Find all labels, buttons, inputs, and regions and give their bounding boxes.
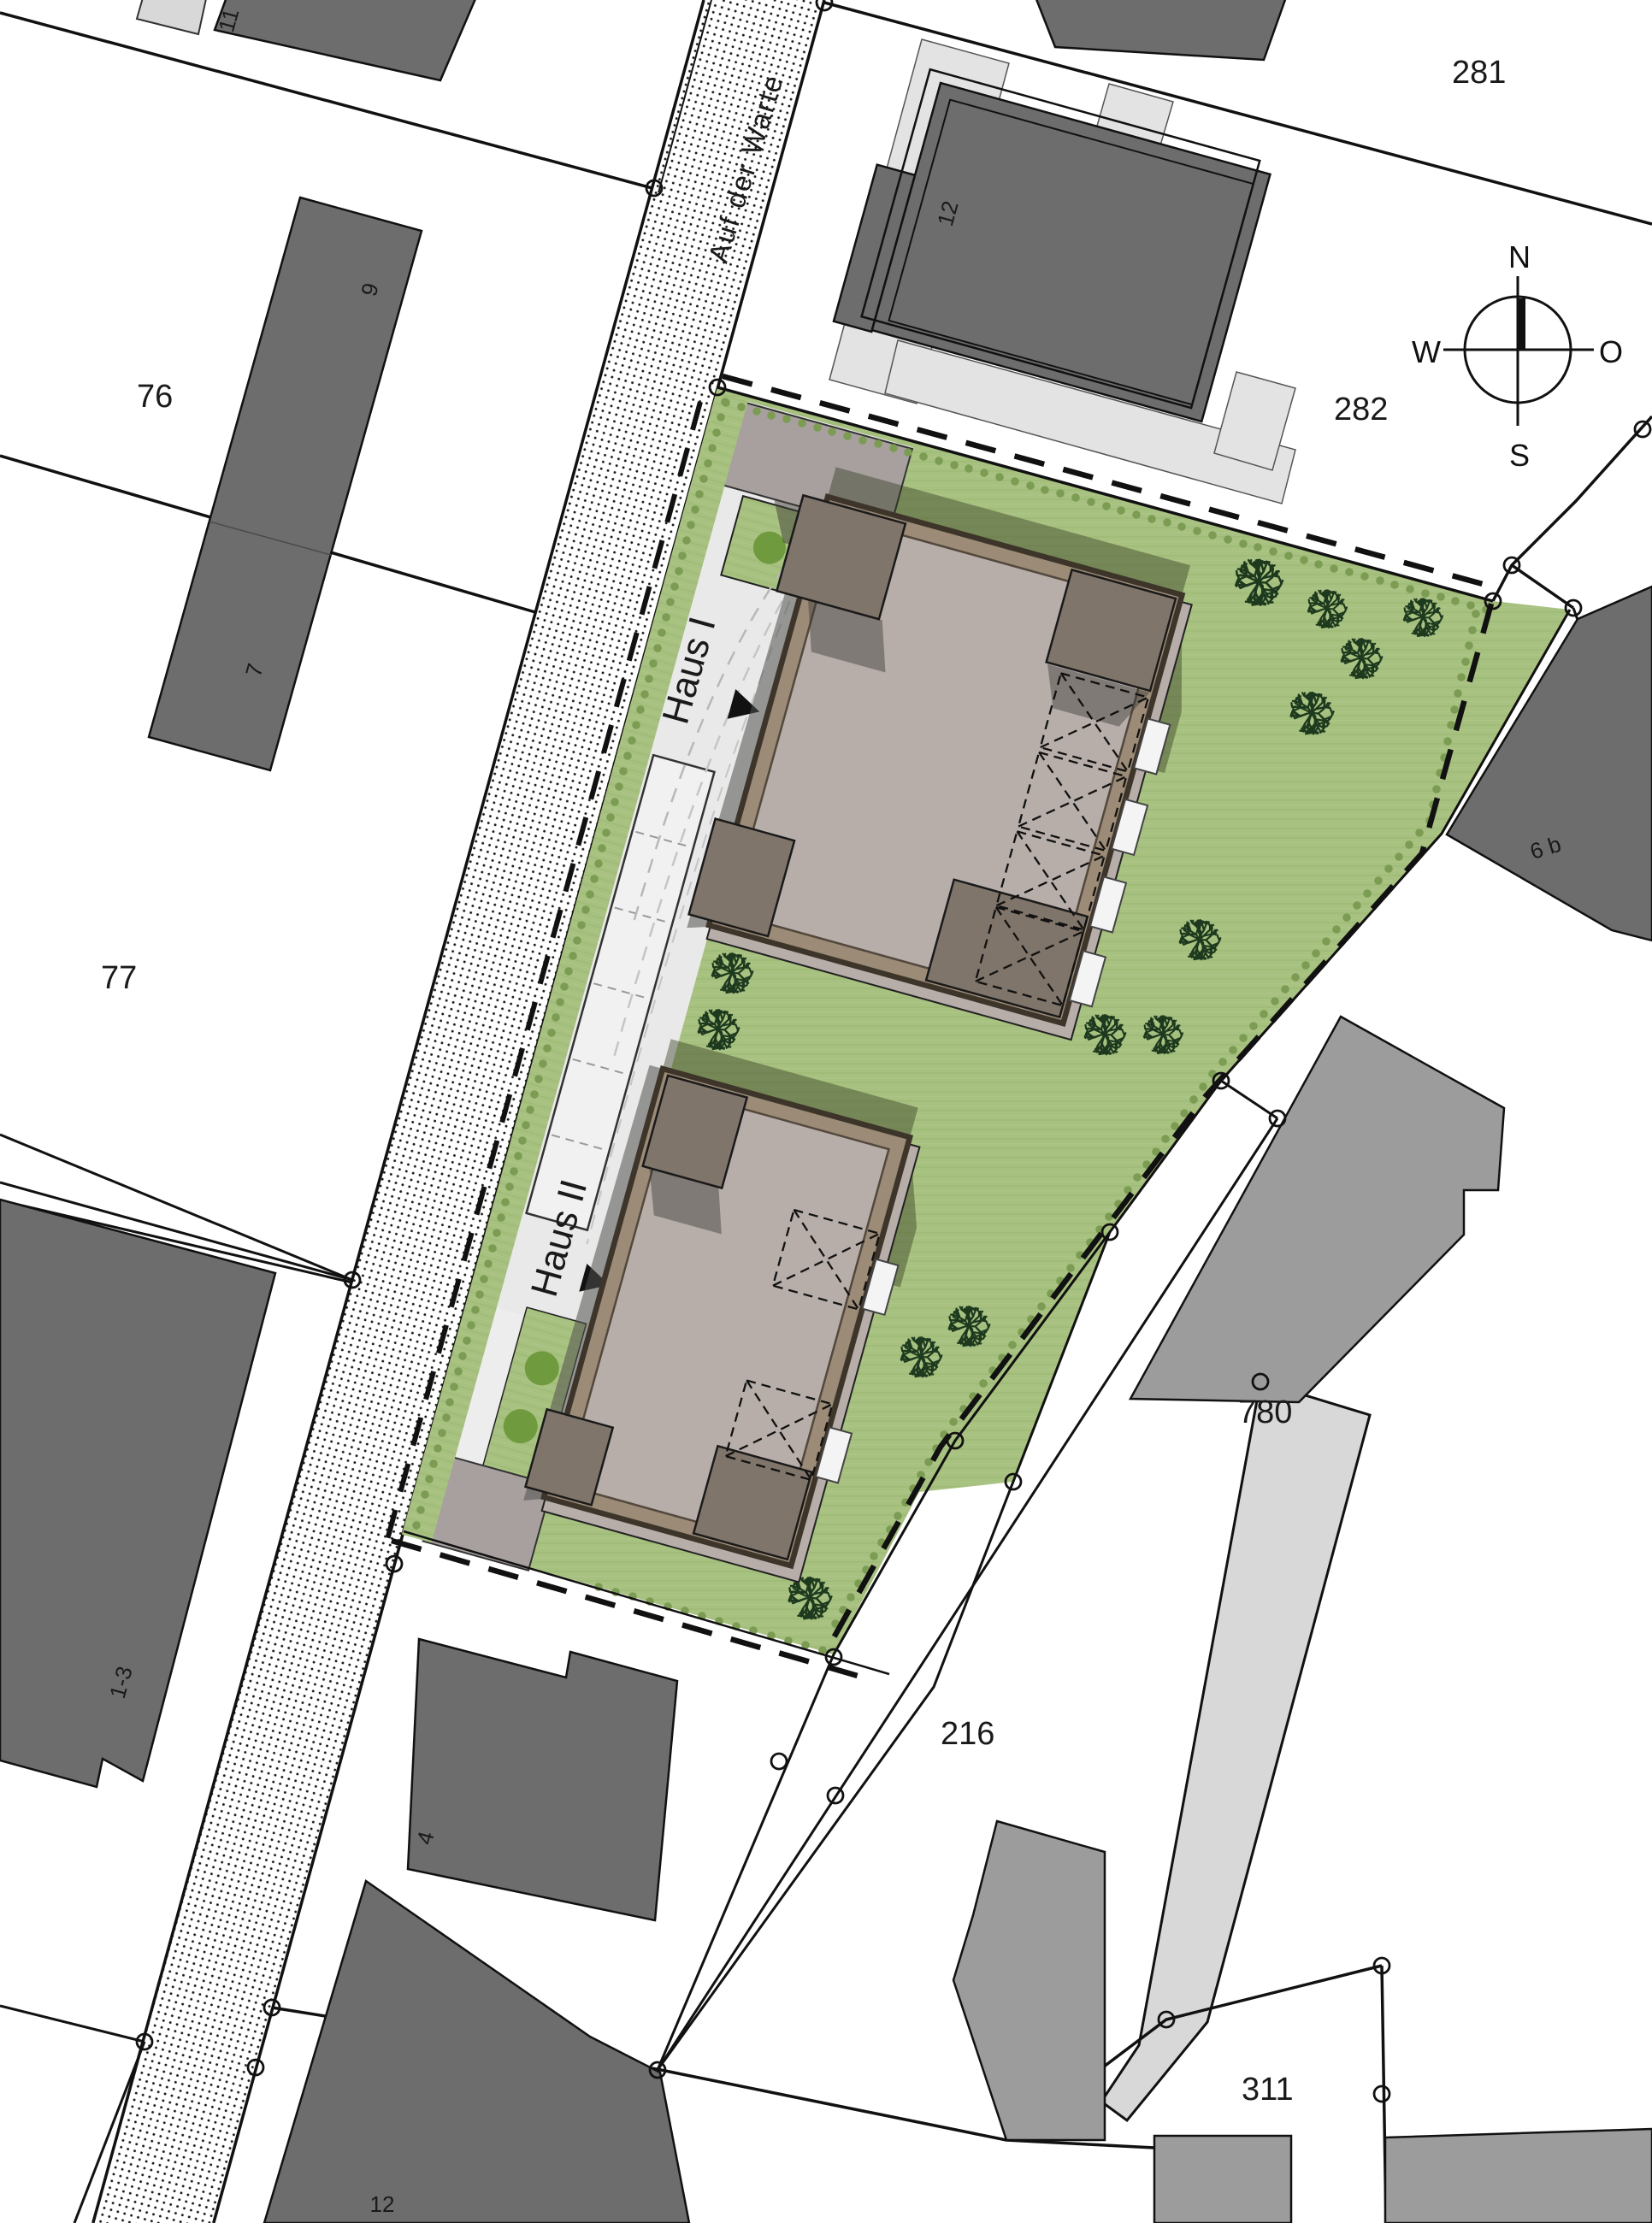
svg-text:O: O (1599, 334, 1623, 369)
svg-text:N: N (1508, 239, 1531, 274)
svg-text:W: W (1412, 334, 1441, 369)
svg-text:780: 780 (1238, 1395, 1292, 1430)
svg-text:282: 282 (1334, 392, 1388, 427)
svg-text:12: 12 (370, 2191, 395, 2217)
svg-text:311: 311 (1242, 2072, 1294, 2108)
svg-text:281: 281 (1452, 55, 1506, 91)
svg-text:216: 216 (941, 1716, 994, 1752)
svg-text:76: 76 (137, 379, 173, 415)
svg-text:77: 77 (101, 960, 137, 996)
svg-text:S: S (1509, 438, 1530, 473)
